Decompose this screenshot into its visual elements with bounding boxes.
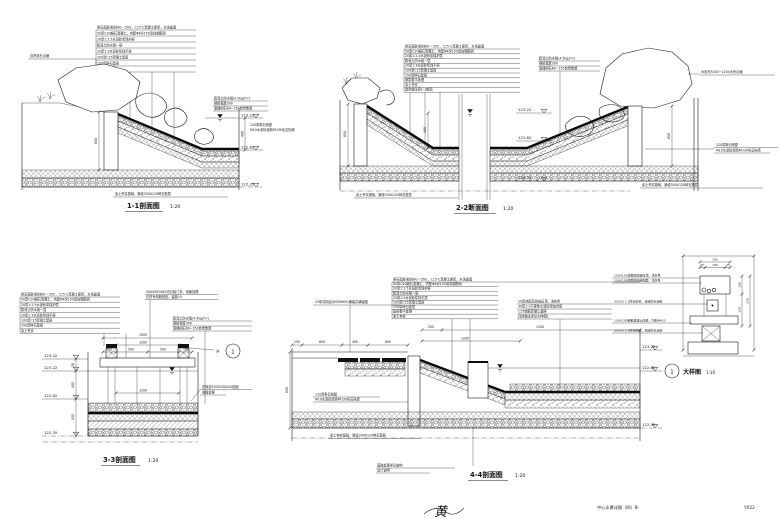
- right-note: C25钢筋混凝土基座: [518, 309, 547, 314]
- rock-label: 自然景石点缀: [30, 53, 50, 58]
- paving-note-text: 20厚花岗岩(600X600)铺装见铺装图: [315, 299, 368, 304]
- section-title: 3-3剖面图: [103, 455, 136, 464]
- dim-label: 850: [285, 387, 289, 393]
- detail-scale: 1:10: [706, 370, 715, 375]
- callout-number: 1: [231, 350, 234, 356]
- layer-note: 素土夯实: [21, 328, 34, 333]
- dim-label: 25: [700, 263, 704, 267]
- drawing-sheet: 卵石面层(粒径60~150)，C15-C混凝土座浆，水洗露面 50厚C20细石混…: [0, 0, 780, 528]
- dim-label: 1100: [536, 325, 544, 329]
- elevation-label: 122.82: [241, 145, 255, 150]
- membrane-note: 面铺卵石60~150自然散置: [214, 106, 252, 111]
- leader-note: 20X20 1:2防水砂浆，满涂防水涂料: [614, 328, 662, 333]
- dim-label: 400: [352, 340, 358, 344]
- section-title: 4-4剖面图: [470, 470, 503, 479]
- elevation-label: 122.35: [642, 422, 656, 427]
- wall-note: M10水泥砂浆砌MU30毛石挡墙: [315, 397, 360, 402]
- layer-note: 卵石面层(粒径60~150)，C15-C混凝土座浆，水洗露面: [405, 44, 484, 49]
- layer-note: 卵石面层(粒径60~150)，C15-C混凝土座浆，水洗露面: [393, 277, 472, 282]
- membrane-note: 膨润土防水毯(4.5kg/m²): [539, 56, 575, 61]
- right-note: 20厚烧面花岗岩压顶，浅灰色: [518, 299, 561, 304]
- dim-label: 500: [128, 348, 134, 352]
- membrane-note: 面铺卵石60~150自然散置: [539, 66, 577, 71]
- dim-label: 150: [738, 307, 742, 313]
- stone-wall: [104, 112, 118, 170]
- pond-floor: [505, 384, 640, 408]
- dim-label: 650: [319, 340, 325, 344]
- cad-canvas: 卵石面层(粒径60~150)，C15-C混凝土座浆，水洗露面 50厚C20细石混…: [0, 0, 780, 528]
- leader-note: 150X100烧面花岗岩压顶，浅灰色: [614, 273, 661, 278]
- foot-note: 基础处理详见结构: [377, 463, 403, 468]
- coping-block: [700, 276, 730, 294]
- elevation-label: 123.22: [642, 344, 656, 349]
- membrane-note: 搭接宽度300: [214, 101, 233, 106]
- elevation-label: 122.82: [642, 365, 656, 370]
- dim-label: 1500: [139, 333, 147, 337]
- elevation-label: 123.22: [241, 113, 255, 118]
- section-scale: 1:20: [170, 204, 180, 210]
- membrane-note: 搭接宽度300: [173, 321, 192, 326]
- section-scale: 1:20: [148, 458, 158, 464]
- detail-number: 1: [670, 370, 673, 376]
- pier-note: 花岗岩500X300X20贴面: [202, 384, 239, 389]
- dim-label: 1200: [461, 337, 469, 341]
- stone-wall-left: [354, 104, 367, 166]
- elevation-label: 122.35: [518, 175, 532, 180]
- dim-label: 100: [712, 263, 718, 267]
- base-note: 素土夯实基础，铺设300X120碎石垫层: [642, 182, 698, 187]
- membrane-note: 搭接宽度300: [539, 61, 558, 66]
- section-title: 1-1剖面图: [127, 201, 160, 210]
- pier-note: 烧面处理: [202, 390, 216, 395]
- depth-dim: 400: [423, 127, 427, 133]
- sheet-number: YX22: [743, 505, 755, 510]
- dim-label: 1200: [139, 341, 147, 345]
- elevation-label: 123.42: [44, 353, 58, 358]
- wall-note: 120厚条石侧壁: [315, 392, 338, 397]
- right-note: 具体做法详见大样图1: [518, 314, 549, 319]
- rock-label: 水景石R300~1200大块点缀: [701, 69, 743, 74]
- dim-label: 25: [726, 263, 730, 267]
- dim-label: 500: [160, 348, 166, 352]
- dim-label: 850: [667, 133, 671, 139]
- base-note: 素土夯实基础，铺设300X120碎石垫层: [356, 192, 412, 197]
- membrane-note: 膨润土防水毯(4.5kg/m²): [214, 96, 250, 101]
- step-note: 500X500X80青石板汀步，烧面处理: [146, 289, 199, 294]
- layer-note: 100厚C15混凝土垫层: [97, 55, 129, 60]
- elevation-label: 122.82: [44, 393, 58, 398]
- leader-note: 100X100钢筋混凝土压梁，内配4Φ10: [614, 318, 666, 323]
- dim-label: 50: [71, 363, 75, 367]
- dim-label: 450: [71, 414, 75, 420]
- dim-label: 100: [738, 282, 742, 288]
- stone-pier: [468, 362, 488, 398]
- section-scale: 1:20: [515, 473, 525, 479]
- step-note: 石材专用胶粘贴，留缝10: [146, 294, 182, 299]
- elevation-label: 122.35: [44, 430, 58, 435]
- section-scale: 1:20: [503, 206, 513, 212]
- dim-label: 400: [71, 382, 75, 388]
- layer-note: 20厚1:3水泥砂浆找平层: [97, 49, 132, 54]
- elevation-label: 123.22: [44, 365, 58, 370]
- depth-dim: 400: [241, 131, 245, 137]
- right-note: 30厚1:3干硬性水泥砂浆结合层: [518, 304, 562, 309]
- dim-label: 600: [385, 340, 391, 344]
- membrane-note: 膨润土防水毯(4.5kg/m²): [173, 316, 209, 321]
- leader-note: 30X20 1:2防水砂浆，满涂防水涂料: [614, 299, 662, 304]
- foot-note: 设计说明: [377, 468, 390, 473]
- elevation-label: 122.35: [241, 182, 255, 187]
- sheet-title: 中心水景详图（四）B-: [597, 504, 640, 511]
- layer-note: 20厚1:3水泥砂浆找平层: [21, 312, 56, 317]
- detail-title-text: 大样图: [683, 368, 701, 376]
- layer-note: 膨润土防水毯一层: [21, 307, 47, 312]
- wall-note: M10水泥砂浆砌MU30毛石挡墙: [716, 148, 761, 153]
- layer-note: 100厚C15混凝土垫层: [21, 318, 53, 323]
- dim-label: 150: [712, 258, 718, 262]
- base-note: 素土夯实基础，铺设300X120碎石垫层: [115, 191, 171, 196]
- dim-label: 150: [294, 340, 300, 344]
- dim-label: 850: [94, 138, 98, 144]
- layer-note: 150厚碎石垫层: [21, 323, 43, 328]
- base-layers: [22, 170, 239, 187]
- section-title: 2-2断面图: [456, 203, 489, 212]
- membrane-note: 面铺卵石60~150自然散置: [173, 326, 211, 331]
- layer-note: 膨润土防水毯一层: [97, 43, 123, 48]
- layer-note: 卵石面层(粒径60~150)，C15-C混凝土座浆，水洗露面: [97, 25, 176, 30]
- dim-label: 1200: [139, 389, 147, 393]
- layer-note: 20厚1:2.5水泥砂浆保护层: [97, 37, 135, 42]
- elevation-label: 123.22: [518, 107, 532, 112]
- base-note: 素土夯实基础，铺设300X120碎石垫层: [330, 433, 386, 438]
- dim-label: 250: [746, 298, 750, 304]
- leader-note: 100X100烧面花岗岩贴面，浅灰色: [614, 278, 661, 283]
- wall-note: 120厚条石侧壁: [716, 142, 739, 147]
- layer-note: 50厚C20细石混凝土，内配Φ4@150双向钢筋网: [21, 297, 90, 302]
- layer-note: 卵石面层(粒径60~150)，C15-C混凝土座浆，水洗露面: [21, 292, 100, 297]
- wall-note: 120厚条石侧壁: [250, 122, 273, 127]
- dim-label: 850: [343, 131, 347, 137]
- dim-label: 200: [428, 325, 434, 329]
- layer-note: 20厚1:2.5水泥砂浆保护层: [21, 302, 59, 307]
- stone-wall-right: [628, 106, 642, 166]
- wall-note: M10水泥砂浆砌MU30毛石挡墙: [250, 127, 295, 132]
- elevation-label: 122.82: [518, 135, 532, 140]
- pond-floor: [88, 403, 198, 436]
- layer-note: 50厚C20细石混凝土，内配Φ4@150双向钢筋网: [97, 31, 166, 36]
